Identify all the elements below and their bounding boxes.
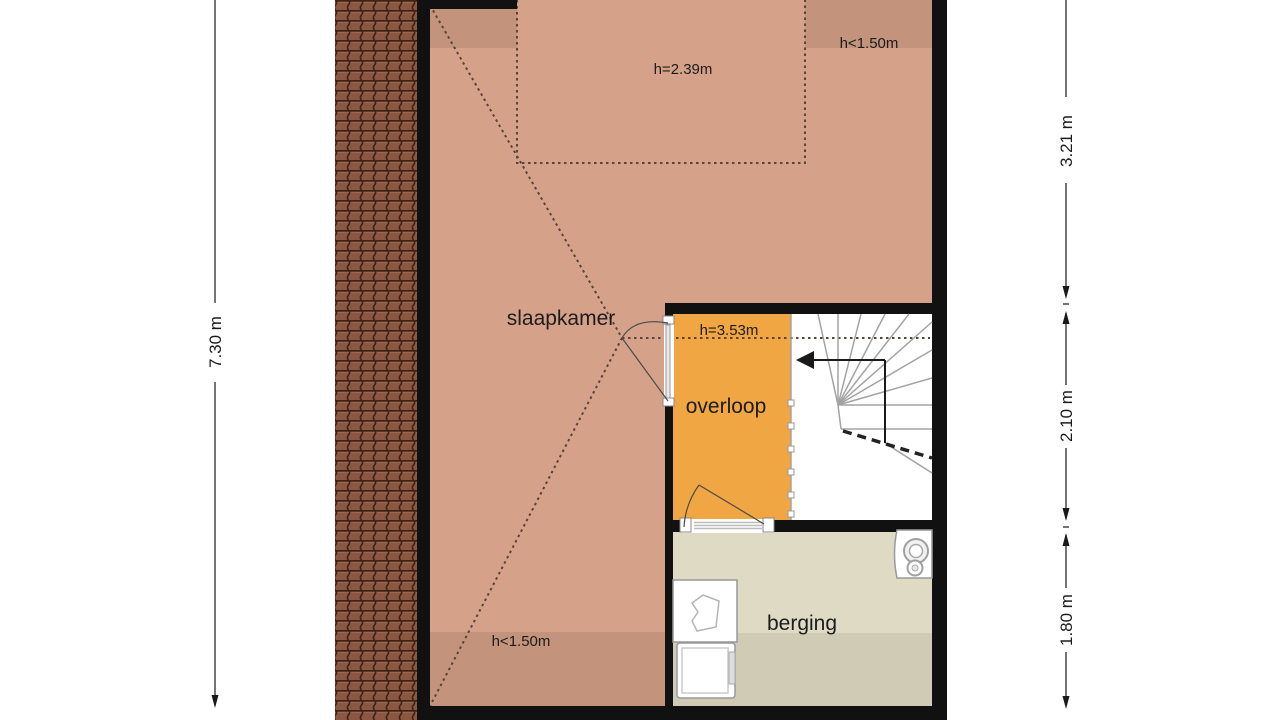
railing-post bbox=[788, 511, 794, 517]
railing-post bbox=[788, 446, 794, 452]
wall-left bbox=[417, 0, 430, 720]
dim-label-right-middle: 2.10 m bbox=[1057, 390, 1076, 442]
wall-landing-top bbox=[665, 303, 932, 314]
washing-machine-top bbox=[682, 648, 728, 693]
railing-post bbox=[788, 400, 794, 406]
floorplan-drawing: slaapkamer overloop berging h=2.39m h<1.… bbox=[0, 0, 1280, 720]
door-leaf-closed bbox=[666, 325, 670, 398]
arrow-up-icon bbox=[1063, 311, 1070, 324]
washing-machine-handle bbox=[729, 652, 735, 684]
dim-label-left: 7.30 m bbox=[206, 316, 225, 368]
bedroom-label: slaapkamer bbox=[507, 307, 616, 330]
railing-post bbox=[788, 469, 794, 475]
height-label-353: h=3.53m bbox=[700, 322, 759, 339]
ventilation-fan-inner-icon bbox=[910, 545, 923, 558]
door-jamb-right bbox=[763, 518, 774, 532]
ventilation-unit bbox=[895, 530, 933, 578]
arrow-down-icon bbox=[1063, 696, 1070, 709]
wall-right bbox=[932, 0, 947, 720]
door-jamb-left bbox=[680, 518, 691, 532]
landing-label: overloop bbox=[686, 395, 767, 418]
ventilation-duct-inner-icon bbox=[912, 565, 918, 571]
stairwell-floor bbox=[791, 314, 932, 520]
roof-tiles-strip bbox=[335, 0, 417, 720]
wall-bottom bbox=[417, 706, 947, 720]
railing-post bbox=[788, 423, 794, 429]
arrow-up-icon bbox=[1063, 533, 1070, 546]
storage-label: berging bbox=[767, 612, 837, 635]
height-label-150-bottom: h<1.50m bbox=[492, 633, 551, 650]
height-label-239: h=2.39m bbox=[654, 61, 713, 78]
wall-top-segment bbox=[417, 0, 517, 9]
dim-label-right-bottom: 1.80 m bbox=[1057, 594, 1076, 646]
railing-post bbox=[788, 492, 794, 498]
arrow-down-icon bbox=[1063, 508, 1070, 521]
door-jamb-bottom bbox=[663, 398, 674, 406]
height-label-150-top: h<1.50m bbox=[840, 35, 899, 52]
arrow-down-icon bbox=[212, 695, 219, 708]
arrow-down-icon bbox=[1063, 286, 1070, 299]
floorplan-canvas: slaapkamer overloop berging h=2.39m h<1.… bbox=[0, 0, 1280, 720]
dim-label-right-top: 3.21 m bbox=[1057, 115, 1076, 167]
